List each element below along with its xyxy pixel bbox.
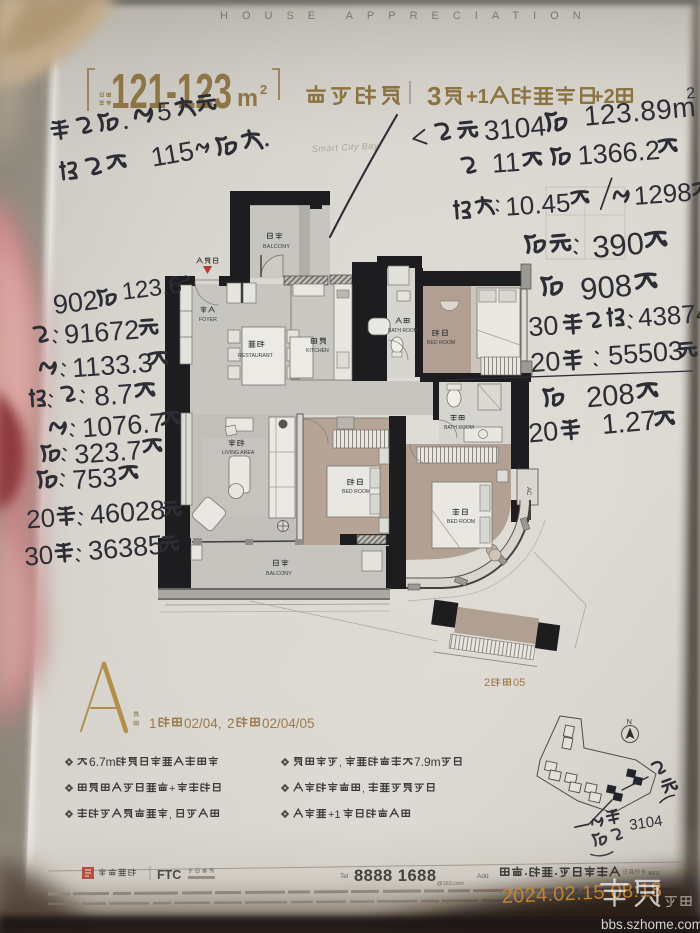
svg-text:BALCONY: BALCONY xyxy=(263,244,290,250)
svg-text:8.7: 8.7 xyxy=(93,378,134,412)
svg-text:,: , xyxy=(339,758,342,769)
svg-text:2: 2 xyxy=(686,85,696,103)
svg-text:N: N xyxy=(627,717,632,726)
svg-text:30: 30 xyxy=(527,310,559,342)
svg-text:20: 20 xyxy=(529,346,561,378)
svg-text:AC: AC xyxy=(525,487,531,496)
svg-text:1298: 1298 xyxy=(633,177,693,211)
svg-text:55503: 55503 xyxy=(607,336,684,371)
svg-text:1.27: 1.27 xyxy=(600,404,657,440)
svg-text:BED ROOM: BED ROOM xyxy=(342,489,370,495)
svg-text:7.9m: 7.9m xyxy=(414,755,441,769)
svg-text:LIVING AREA: LIVING AREA xyxy=(222,450,255,456)
svg-text:91672: 91672 xyxy=(63,315,140,350)
svg-text:11: 11 xyxy=(491,147,521,179)
svg-text:3104: 3104 xyxy=(482,110,547,146)
svg-text:20: 20 xyxy=(527,416,560,449)
svg-text:,: , xyxy=(169,810,172,821)
svg-text:,: , xyxy=(362,784,365,795)
svg-text:+1: +1 xyxy=(328,809,341,821)
svg-text:1133.3: 1133.3 xyxy=(71,348,153,384)
svg-text:3: 3 xyxy=(427,81,441,111)
svg-text:bbs.szhome.com: bbs.szhome.com xyxy=(601,917,700,932)
svg-text:2: 2 xyxy=(484,677,490,689)
svg-text:BED ROOM: BED ROOM xyxy=(427,340,455,346)
svg-text:390: 390 xyxy=(591,226,646,265)
svg-text:+: + xyxy=(169,783,175,795)
svg-text:m: m xyxy=(237,85,258,112)
svg-text:BATH ROOM: BATH ROOM xyxy=(444,425,474,431)
svg-text:02/04,: 02/04, xyxy=(184,716,222,731)
svg-text:KITCHEN: KITCHEN xyxy=(306,348,329,354)
svg-text:753: 753 xyxy=(71,462,118,495)
svg-text:20: 20 xyxy=(25,502,56,534)
svg-text:46028: 46028 xyxy=(89,495,166,530)
svg-text:+1: +1 xyxy=(466,86,489,108)
svg-text:5: 5 xyxy=(156,96,172,127)
svg-text:1: 1 xyxy=(149,716,157,731)
svg-text:BATH ROOM: BATH ROOM xyxy=(388,328,418,334)
svg-text:902: 902 xyxy=(51,285,99,320)
svg-text:RESTAURANT: RESTAURANT xyxy=(238,353,274,359)
svg-text:2: 2 xyxy=(227,716,235,731)
svg-text:908: 908 xyxy=(579,268,634,307)
svg-text:1366.2: 1366.2 xyxy=(577,135,661,171)
svg-text:2: 2 xyxy=(260,82,267,97)
svg-text:HOUSE APPRECIATION: HOUSE APPRECIATION xyxy=(220,10,595,22)
svg-text:43874: 43874 xyxy=(637,298,700,333)
svg-text:6.7m: 6.7m xyxy=(89,755,116,769)
svg-text:30: 30 xyxy=(23,539,54,571)
svg-text:02/04/05: 02/04/05 xyxy=(262,716,315,731)
svg-text:05: 05 xyxy=(513,677,525,689)
svg-text:BED ROOM: BED ROOM xyxy=(447,519,475,525)
svg-text:10.45: 10.45 xyxy=(504,187,571,221)
svg-text:FOYER: FOYER xyxy=(199,317,217,323)
svg-text:BALCONY: BALCONY xyxy=(266,571,292,577)
